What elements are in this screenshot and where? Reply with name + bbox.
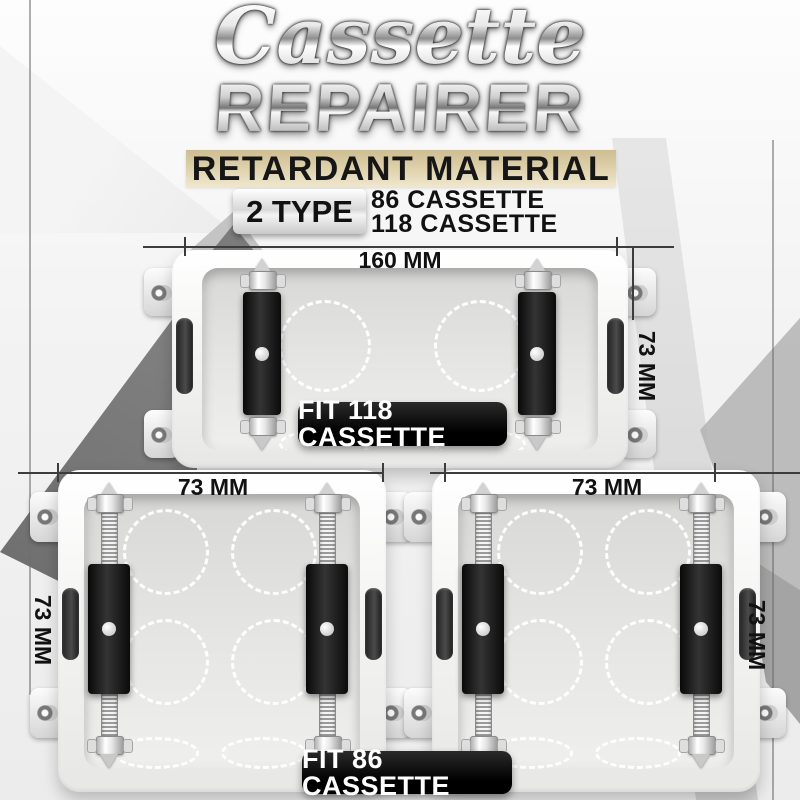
screw-nut-icon: [688, 494, 716, 513]
knockout-circle-icon: [279, 300, 371, 392]
dimension-tick: [616, 237, 618, 256]
knockout-circle-icon: [605, 509, 691, 595]
screw-nut-icon: [524, 271, 552, 290]
bracket-hole-icon: [102, 622, 116, 636]
cassette-86-right-frame: [432, 470, 760, 792]
dimension-tick: [714, 463, 716, 482]
side-slot-icon: [436, 588, 453, 660]
screw-tip-icon: [528, 436, 546, 450]
knockout-circle-icon: [605, 619, 691, 705]
product-poster: Cassette REPAIRER RETARDANT MATERIAL 2 T…: [0, 0, 800, 800]
bracket-hole-icon: [694, 622, 708, 636]
dimension-label-118-width: 160 MM: [320, 249, 480, 272]
type-count-box: 2 TYPE: [233, 189, 366, 234]
side-slot-icon: [62, 588, 79, 660]
knockout-circle-icon: [497, 619, 583, 705]
dimension-tick: [382, 463, 384, 482]
bracket-hole-icon: [530, 347, 544, 361]
side-slot-icon: [365, 588, 382, 660]
dimension-line-118-height: [632, 246, 634, 320]
dimension-label-86R-width: 73 MM: [542, 476, 672, 499]
dimension-label-86L-height: 73 MM: [30, 575, 56, 685]
threaded-rod-icon: [693, 692, 710, 738]
knockout-circle-icon: [123, 509, 209, 595]
knockout-circle-icon: [434, 300, 526, 392]
repair-bracket-bar: [88, 564, 130, 694]
threaded-rod-icon: [319, 692, 336, 738]
threaded-rod-icon: [101, 510, 118, 566]
screw-tip-icon: [692, 754, 710, 768]
dimension-tick: [184, 237, 186, 256]
screw-tip-icon: [253, 436, 271, 450]
threaded-rod-icon: [693, 510, 710, 566]
bracket-hole-icon: [255, 347, 269, 361]
bracket-hole-icon: [320, 622, 334, 636]
side-slot-icon: [176, 318, 193, 394]
knockout-circle-icon: [123, 619, 209, 705]
dimension-tick: [632, 246, 674, 248]
badge-fit-118: FIT 118 CASSETTE: [298, 402, 507, 446]
screw-nut-icon: [470, 494, 498, 513]
screw-nut-icon: [96, 736, 124, 755]
screw-tip-icon: [528, 258, 546, 272]
knockout-ellipse-icon: [221, 737, 307, 769]
side-slot-icon: [607, 318, 624, 394]
screw-nut-icon: [249, 417, 277, 436]
badge-fit-86: FIT 86 CASSETTE: [302, 751, 512, 794]
repair-bracket-bar: [243, 292, 281, 415]
dimension-label-118-height: 73 MM: [634, 311, 660, 421]
knockout-circle-icon: [497, 509, 583, 595]
repair-bracket-bar: [518, 292, 556, 415]
screw-nut-icon: [688, 736, 716, 755]
screw-tip-icon: [100, 754, 118, 768]
dimension-tick: [57, 463, 59, 482]
threaded-rod-icon: [475, 692, 492, 738]
screw-nut-icon: [524, 417, 552, 436]
type-option-118: 118 CASSETTE: [371, 212, 558, 236]
bracket-hole-icon: [476, 622, 490, 636]
banner-retardant-material: RETARDANT MATERIAL: [186, 150, 616, 187]
threaded-rod-icon: [319, 510, 336, 566]
dimension-tick: [444, 463, 446, 482]
screw-tip-icon: [253, 258, 271, 272]
title-script: Cassette: [0, 0, 800, 76]
threaded-rod-icon: [475, 510, 492, 566]
dimension-label-86R-height: 73 MM: [744, 580, 770, 690]
dimension-label-86L-width: 73 MM: [148, 476, 278, 499]
repair-bracket-bar: [680, 564, 722, 694]
screw-nut-icon: [96, 494, 124, 513]
repair-bracket-bar: [306, 564, 348, 694]
title-main: REPAIRER: [0, 74, 800, 142]
screw-nut-icon: [314, 494, 342, 513]
repair-bracket-bar: [462, 564, 504, 694]
knockout-circle-icon: [231, 509, 317, 595]
type-option-86: 86 CASSETTE: [371, 188, 558, 212]
type-options: 86 CASSETTE 118 CASSETTE: [371, 188, 558, 236]
knockout-ellipse-icon: [595, 737, 681, 769]
knockout-circle-icon: [231, 619, 317, 705]
threaded-rod-icon: [101, 692, 118, 738]
screw-nut-icon: [249, 271, 277, 290]
